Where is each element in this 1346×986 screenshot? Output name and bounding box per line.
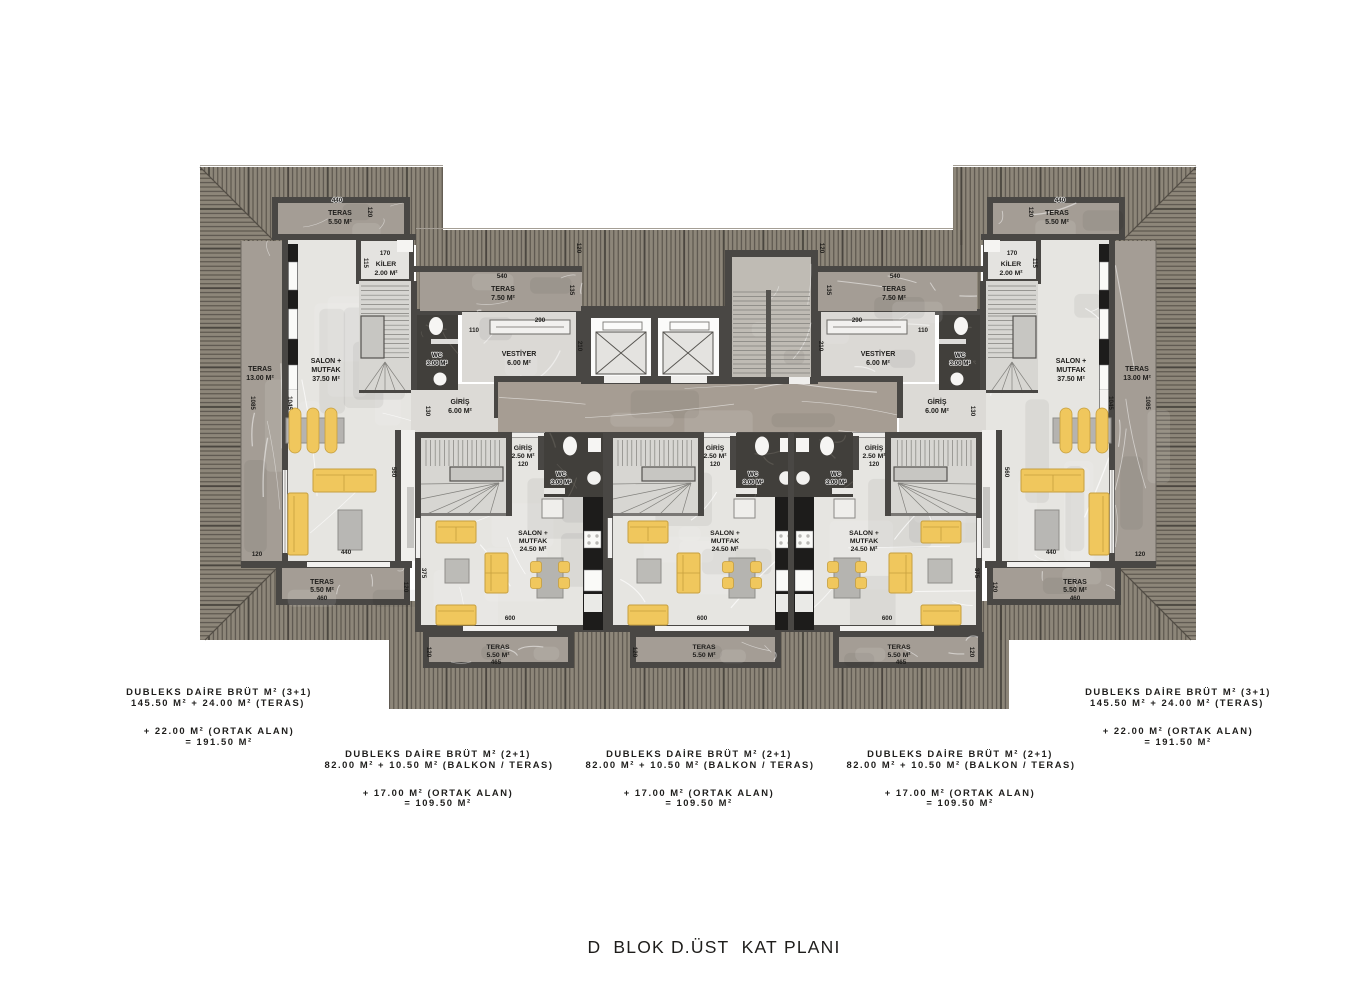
svg-text:TERAS: TERAS xyxy=(887,644,911,651)
svg-text:= 191.50 M²: = 191.50 M² xyxy=(185,736,252,747)
svg-text:82.00 M² + 10.50 M² (BALKON /: 82.00 M² + 10.50 M² (BALKON / TERAS) xyxy=(324,759,553,770)
svg-text:5.50 M²: 5.50 M² xyxy=(328,219,352,226)
svg-text:TERAS: TERAS xyxy=(882,286,906,293)
svg-text:600: 600 xyxy=(697,615,708,622)
svg-text:13.00 M²: 13.00 M² xyxy=(246,375,274,382)
svg-text:82.00 M² + 10.50 M² (BALKON /: 82.00 M² + 10.50 M² (BALKON / TERAS) xyxy=(846,759,1075,770)
svg-text:290: 290 xyxy=(852,317,863,324)
svg-text:TERAS: TERAS xyxy=(1063,579,1087,586)
svg-text:3.00 M²: 3.00 M² xyxy=(950,360,971,367)
svg-text:375: 375 xyxy=(420,568,427,579)
svg-text:DUBLEKS DAİRE BRÜT M² (2+1): DUBLEKS DAİRE BRÜT M² (2+1) xyxy=(345,748,531,759)
svg-text:2.50 M²: 2.50 M² xyxy=(511,453,535,460)
svg-text:135: 135 xyxy=(825,285,832,296)
svg-text:465: 465 xyxy=(896,659,907,666)
svg-text:145.50 M² + 24.00 M² (TERAS): 145.50 M² + 24.00 M² (TERAS) xyxy=(131,697,305,708)
svg-text:120: 120 xyxy=(252,551,263,558)
svg-text:6.00 M²: 6.00 M² xyxy=(866,360,890,367)
svg-text:145.50 M² + 24.00 M² (TERAS): 145.50 M² + 24.00 M² (TERAS) xyxy=(1090,697,1264,708)
svg-text:7.50 M²: 7.50 M² xyxy=(491,295,515,302)
svg-text:2.50 M²: 2.50 M² xyxy=(703,453,727,460)
svg-text:DUBLEKS DAİRE BRÜT M² (2+1): DUBLEKS DAİRE BRÜT M² (2+1) xyxy=(867,748,1053,759)
svg-text:115: 115 xyxy=(1031,258,1038,269)
svg-text:120: 120 xyxy=(968,647,975,658)
svg-text:5.50 M²: 5.50 M² xyxy=(310,587,334,594)
svg-text:GİRİŞ: GİRİŞ xyxy=(865,444,884,452)
svg-text:130: 130 xyxy=(424,406,431,417)
svg-text:6.00 M²: 6.00 M² xyxy=(448,408,472,415)
svg-text:120: 120 xyxy=(402,582,409,593)
svg-text:VESTİYER: VESTİYER xyxy=(861,350,896,358)
svg-text:375: 375 xyxy=(973,568,980,579)
svg-text:170: 170 xyxy=(1007,250,1018,257)
svg-text:7.50 M²: 7.50 M² xyxy=(882,295,906,302)
svg-text:= 191.50 M²: = 191.50 M² xyxy=(1144,736,1211,747)
svg-text:MUTFAK: MUTFAK xyxy=(1056,367,1085,374)
svg-text:440: 440 xyxy=(1055,197,1066,204)
svg-text:440: 440 xyxy=(332,197,343,204)
svg-text:3.00 M²: 3.00 M² xyxy=(826,479,846,486)
svg-text:3.00 M²: 3.00 M² xyxy=(427,360,448,367)
svg-text:170: 170 xyxy=(380,250,391,257)
svg-text:TERAS: TERAS xyxy=(486,644,510,651)
svg-text:6.00 M²: 6.00 M² xyxy=(925,408,949,415)
svg-text:1085: 1085 xyxy=(249,396,256,410)
svg-text:130: 130 xyxy=(969,406,976,417)
svg-text:1085: 1085 xyxy=(1144,396,1151,410)
svg-text:600: 600 xyxy=(882,615,893,622)
svg-text:13.00 M²: 13.00 M² xyxy=(1123,375,1151,382)
svg-text:GİRİŞ: GİRİŞ xyxy=(927,398,946,406)
svg-text:24.50 M²: 24.50 M² xyxy=(712,546,740,553)
svg-text:460: 460 xyxy=(317,595,328,602)
svg-text:560: 560 xyxy=(1003,467,1010,478)
svg-text:440: 440 xyxy=(1046,549,1057,556)
svg-text:WC: WC xyxy=(955,352,966,359)
svg-text:DUBLEKS DAİRE BRÜT M² (3+1): DUBLEKS DAİRE BRÜT M² (3+1) xyxy=(126,686,312,697)
svg-text:120: 120 xyxy=(518,461,529,468)
svg-text:TERAS: TERAS xyxy=(491,286,515,293)
svg-text:TERAS: TERAS xyxy=(328,210,352,217)
svg-text:560: 560 xyxy=(390,467,397,478)
svg-text:TERAS: TERAS xyxy=(1045,210,1069,217)
svg-text:120: 120 xyxy=(366,207,373,218)
svg-text:= 109.50 M²: = 109.50 M² xyxy=(926,797,993,808)
svg-text:GİRİŞ: GİRİŞ xyxy=(706,444,725,452)
svg-text:3.00 M²: 3.00 M² xyxy=(743,479,763,486)
svg-text:KİLER: KİLER xyxy=(376,260,396,268)
svg-text:600: 600 xyxy=(505,615,516,622)
svg-text:120: 120 xyxy=(631,647,638,658)
svg-text:+ 22.00 M² (ORTAK ALAN): + 22.00 M² (ORTAK ALAN) xyxy=(1103,725,1254,736)
svg-text:440: 440 xyxy=(341,549,352,556)
svg-text:540: 540 xyxy=(890,273,901,280)
svg-text:2.00 M²: 2.00 M² xyxy=(374,270,398,277)
svg-text:37.50 M²: 37.50 M² xyxy=(1057,376,1085,383)
svg-text:MUTFAK: MUTFAK xyxy=(519,538,547,545)
svg-text:+ 22.00 M² (ORTAK ALAN): + 22.00 M² (ORTAK ALAN) xyxy=(144,725,295,736)
svg-text:120: 120 xyxy=(991,582,998,593)
svg-text:TERAS: TERAS xyxy=(692,644,716,651)
svg-text:MUTFAK: MUTFAK xyxy=(711,538,739,545)
svg-text:= 109.50 M²: = 109.50 M² xyxy=(665,797,732,808)
svg-text:1045: 1045 xyxy=(286,396,293,410)
svg-text:120: 120 xyxy=(1135,551,1146,558)
svg-text:WC: WC xyxy=(748,472,759,478)
svg-text:SALON +: SALON + xyxy=(311,358,342,365)
svg-text:TERAS: TERAS xyxy=(1125,366,1149,373)
svg-text:2.00 M²: 2.00 M² xyxy=(999,270,1023,277)
svg-text:2.50 M²: 2.50 M² xyxy=(862,453,886,460)
svg-text:DUBLEKS DAİRE BRÜT M² (2+1): DUBLEKS DAİRE BRÜT M² (2+1) xyxy=(606,748,792,759)
svg-text:120: 120 xyxy=(818,243,825,254)
svg-text:120: 120 xyxy=(1027,207,1034,218)
svg-text:110: 110 xyxy=(918,327,929,334)
svg-text:24.50 M²: 24.50 M² xyxy=(851,546,879,553)
svg-text:SALON +: SALON + xyxy=(849,530,879,537)
svg-text:82.00 M² + 10.50 M² (BALKON /: 82.00 M² + 10.50 M² (BALKON / TERAS) xyxy=(585,759,814,770)
svg-text:3.00 M²: 3.00 M² xyxy=(551,479,571,486)
svg-text:5.50 M²: 5.50 M² xyxy=(1045,219,1069,226)
svg-text:465: 465 xyxy=(491,659,502,666)
svg-text:WC: WC xyxy=(432,352,443,359)
svg-text:540: 540 xyxy=(497,273,508,280)
svg-text:KİLER: KİLER xyxy=(1001,260,1021,268)
svg-text:460: 460 xyxy=(1070,595,1081,602)
svg-text:5.50 M²: 5.50 M² xyxy=(486,652,510,659)
svg-text:120: 120 xyxy=(869,461,880,468)
svg-text:5.50 M²: 5.50 M² xyxy=(1063,587,1087,594)
svg-text:GİRİŞ: GİRİŞ xyxy=(450,398,469,406)
svg-text:37.50 M²: 37.50 M² xyxy=(312,376,340,383)
svg-text:6.00 M²: 6.00 M² xyxy=(507,360,531,367)
svg-text:SALON +: SALON + xyxy=(518,530,548,537)
svg-text:SALON +: SALON + xyxy=(710,530,740,537)
svg-text:210: 210 xyxy=(817,341,824,352)
svg-text:210: 210 xyxy=(576,341,583,352)
svg-text:120: 120 xyxy=(425,647,432,658)
svg-text:120: 120 xyxy=(710,461,721,468)
svg-text:TERAS: TERAS xyxy=(248,366,272,373)
svg-text:24.50 M²: 24.50 M² xyxy=(520,546,548,553)
svg-text:SALON +: SALON + xyxy=(1056,358,1087,365)
svg-text:TERAS: TERAS xyxy=(310,579,334,586)
svg-text:MUTFAK: MUTFAK xyxy=(311,367,340,374)
svg-text:115: 115 xyxy=(362,258,369,269)
svg-text:290: 290 xyxy=(535,317,546,324)
svg-text:VESTİYER: VESTİYER xyxy=(502,350,537,358)
svg-text:120: 120 xyxy=(575,243,582,254)
svg-text:135: 135 xyxy=(568,285,575,296)
svg-text:D BLOK D.ÜST KAT PLANI: D BLOK D.ÜST KAT PLANI xyxy=(587,937,840,957)
svg-text:MUTFAK: MUTFAK xyxy=(850,538,878,545)
svg-text:1045: 1045 xyxy=(1107,396,1114,410)
svg-text:= 109.50 M²: = 109.50 M² xyxy=(404,797,471,808)
svg-text:GİRİŞ: GİRİŞ xyxy=(514,444,533,452)
svg-text:110: 110 xyxy=(469,327,480,334)
svg-text:5.50 M²: 5.50 M² xyxy=(887,652,911,659)
svg-text:WC: WC xyxy=(556,472,567,478)
svg-text:WC: WC xyxy=(831,472,842,478)
svg-text:5.50 M²: 5.50 M² xyxy=(692,652,716,659)
svg-text:DUBLEKS DAİRE BRÜT M² (3+1): DUBLEKS DAİRE BRÜT M² (3+1) xyxy=(1085,686,1271,697)
